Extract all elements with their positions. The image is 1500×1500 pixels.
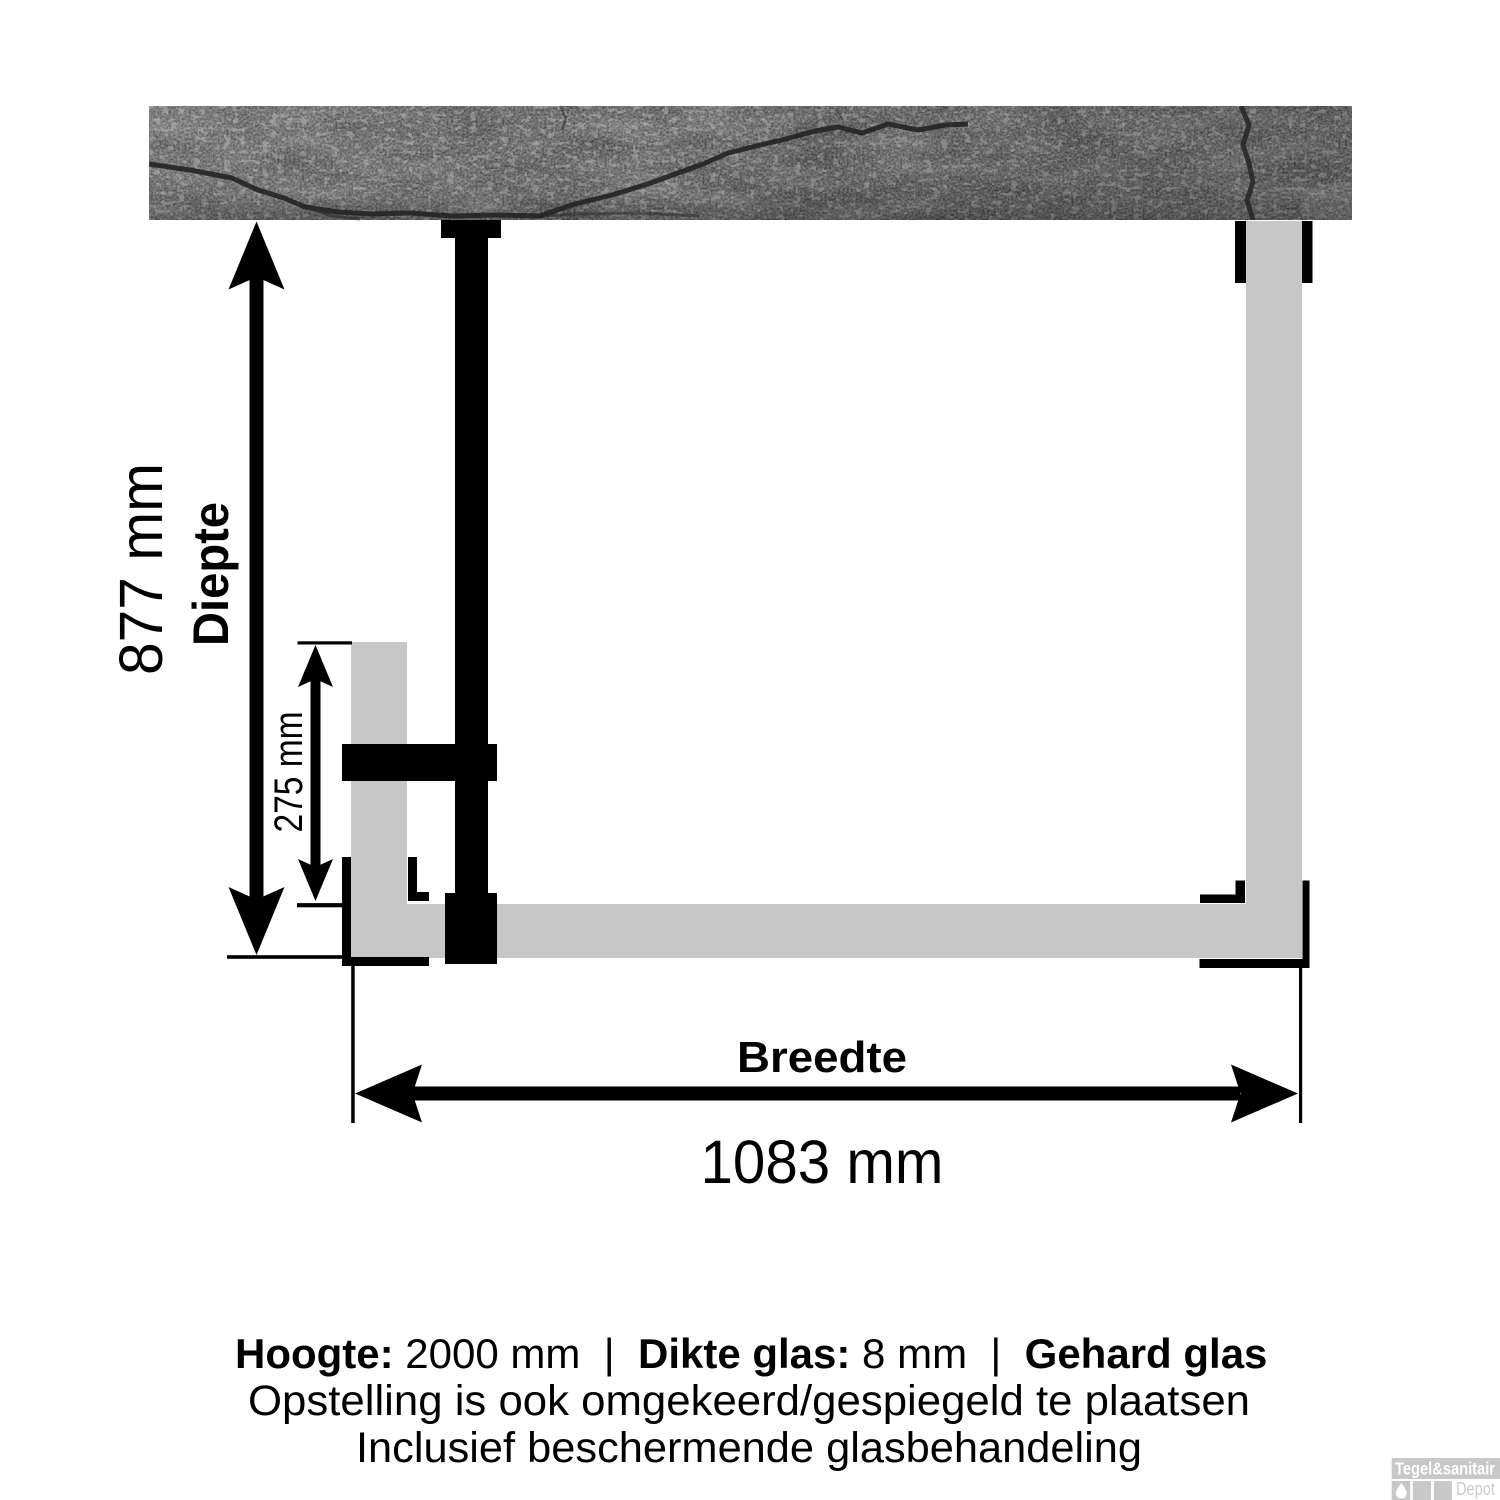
svg-text:Depot: Depot: [1456, 1479, 1495, 1499]
svg-text:877 mm: 877 mm: [107, 463, 175, 675]
svg-text:Breedte: Breedte: [737, 1033, 907, 1082]
svg-text:1083 mm: 1083 mm: [701, 1128, 944, 1196]
svg-text:Inclusief beschermende glasbeh: Inclusief beschermende glasbehandeling: [356, 1424, 1142, 1472]
svg-text:Diepte: Diepte: [183, 502, 239, 646]
svg-text:Tegel&sanitair: Tegel&sanitair: [1395, 1459, 1495, 1479]
svg-text:Opstelling is ook omgekeerd/ge: Opstelling is ook omgekeerd/gespiegeld t…: [248, 1377, 1250, 1425]
svg-text:Hoogte: 2000 mm | Dikte glas: Hoogte: 2000 mm | Dikte glas: 8 mm | Geh…: [235, 1330, 1267, 1377]
svg-text:275 mm: 275 mm: [267, 712, 311, 833]
